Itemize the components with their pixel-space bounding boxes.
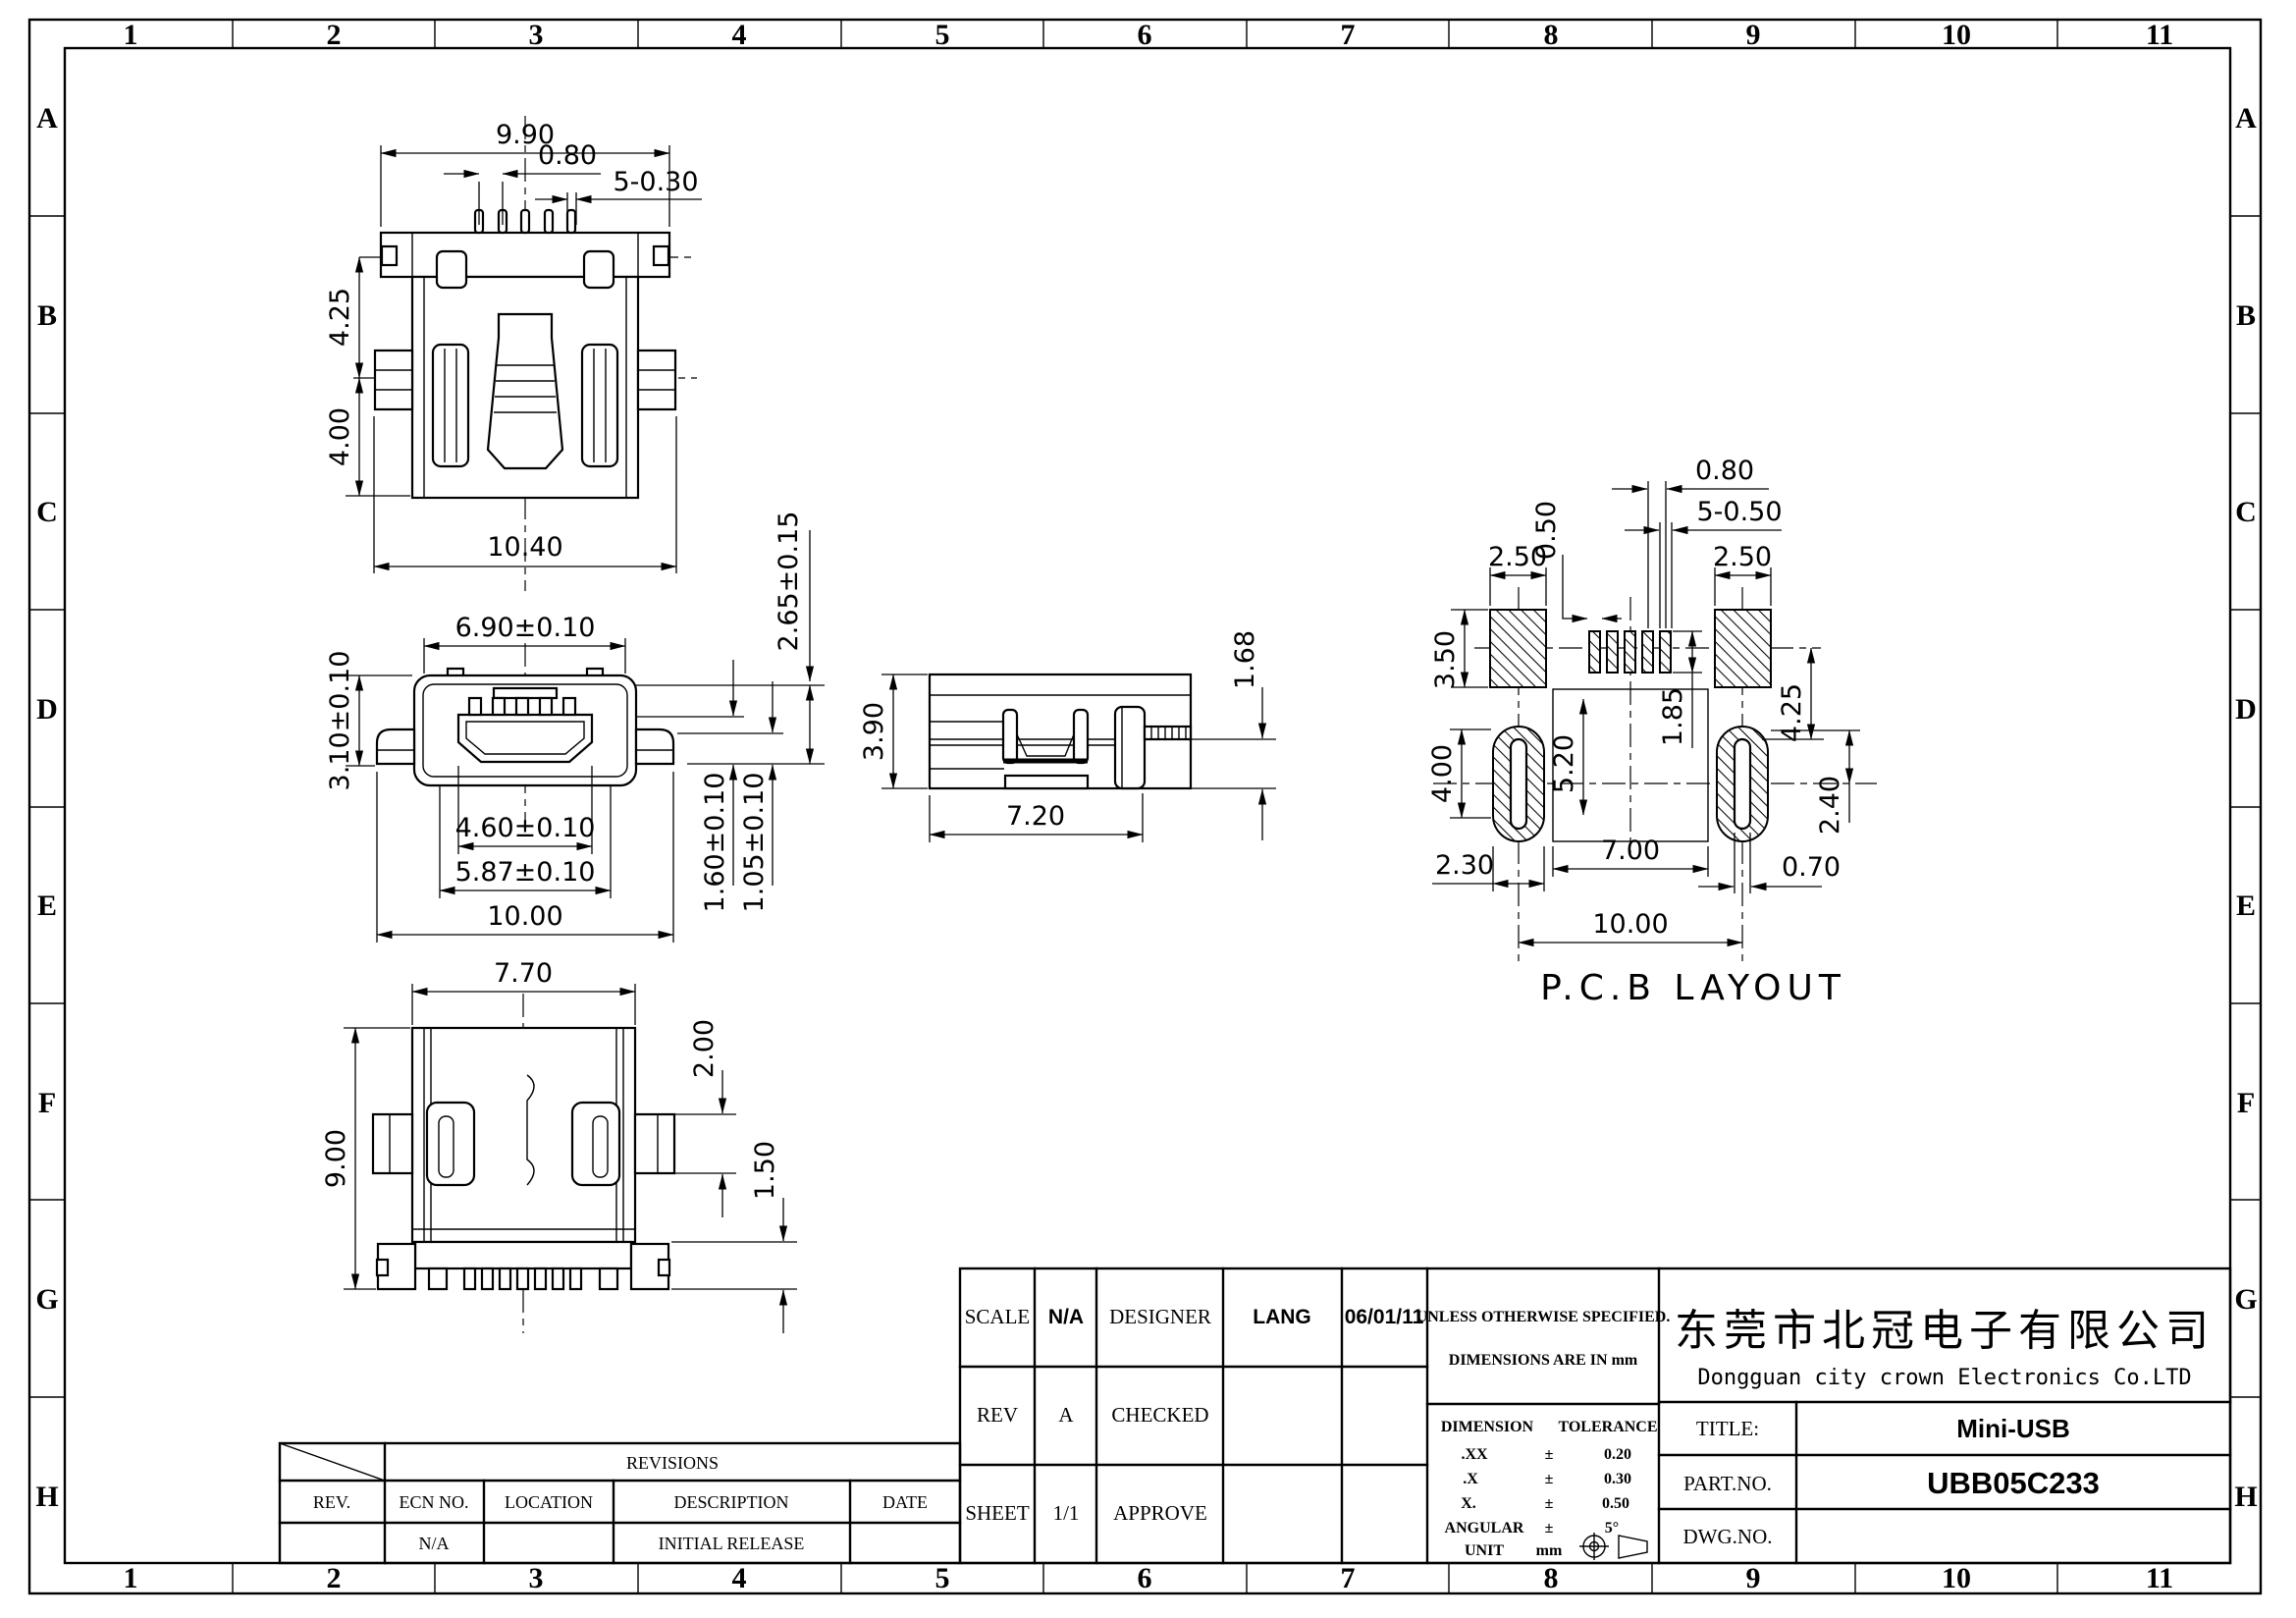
grid-col: 3 bbox=[529, 19, 544, 51]
grid-col: 8 bbox=[1544, 1562, 1559, 1594]
dim-rear-width-bottom: 10.40 bbox=[487, 532, 562, 563]
approve-label: APPROVE bbox=[1113, 1501, 1207, 1525]
part-no-value: UBB05C233 bbox=[1927, 1466, 2100, 1500]
grid-labels-bottom: 1234567891011 bbox=[124, 1562, 2174, 1594]
dim-pcb-body-len: 5.20 bbox=[1549, 734, 1579, 793]
revisions-header-location: LOCATION bbox=[505, 1492, 593, 1512]
grid-row: H bbox=[35, 1481, 58, 1513]
dim-top-tab: 2.00 bbox=[689, 1019, 720, 1078]
grid-col: 4 bbox=[732, 1562, 747, 1594]
grid-row: D bbox=[2235, 693, 2257, 726]
dim-front-height: 3.10±0.10 bbox=[325, 651, 355, 791]
dim-front-width-top: 6.90±0.10 bbox=[455, 613, 596, 643]
grid-row: F bbox=[2237, 1087, 2255, 1119]
title-value: Mini-USB bbox=[1956, 1414, 2070, 1443]
grid-row: G bbox=[2234, 1283, 2257, 1316]
revisions-header-date: DATE bbox=[882, 1492, 928, 1512]
drawing-sheet: 1234567891011 1234567891011 ABCDEFGH ABC… bbox=[0, 0, 2296, 1618]
revisions-header-description: DESCRIPTION bbox=[673, 1492, 788, 1512]
rev-label: REV bbox=[977, 1403, 1018, 1427]
rear-view: 9.90 0.80 5-0.30 4.25 4.00 10.40 bbox=[325, 116, 702, 591]
dim-rear-upper-height: 4.25 bbox=[325, 288, 355, 347]
grid-row: C bbox=[2235, 496, 2257, 528]
revisions-header-ecn: ECN NO. bbox=[400, 1492, 469, 1512]
dim-pcb-oval-width: 2.30 bbox=[1435, 850, 1494, 881]
grid-col: 9 bbox=[1746, 1562, 1761, 1594]
tolerance-header-tolerance: TOLERANCE bbox=[1558, 1419, 1657, 1435]
third-angle-projection-icon bbox=[1579, 1533, 1647, 1560]
dim-side-width: 7.20 bbox=[1006, 801, 1065, 832]
pcb-layout-view: 2.50 2.50 0.50 0.80 5-0.50 1.85 5.20 3.5… bbox=[1427, 456, 1877, 1008]
dim-front-height-r2: 1.60±0.10 bbox=[700, 773, 730, 913]
dim-top-height: 9.00 bbox=[321, 1129, 351, 1188]
grid-row: G bbox=[35, 1283, 58, 1316]
company-name-cn: 东莞市北冠电子有限公司 bbox=[1675, 1307, 2215, 1355]
grid-col: 6 bbox=[1138, 19, 1152, 51]
sheet-label: SHEET bbox=[965, 1501, 1030, 1525]
dim-front-inner-width: 4.60±0.10 bbox=[455, 813, 596, 843]
dwg-no-label: DWG.NO. bbox=[1683, 1525, 1773, 1548]
side-view: 3.90 7.20 1.68 bbox=[859, 630, 1276, 842]
revision-description-value: INITIAL RELEASE bbox=[659, 1534, 805, 1553]
grid-col: 10 bbox=[1942, 19, 1971, 51]
grid-col: 5 bbox=[935, 1562, 950, 1594]
grid-row: F bbox=[38, 1087, 56, 1119]
dim-pcb-pad-len: 3.50 bbox=[1430, 630, 1461, 689]
grid-col: 9 bbox=[1746, 19, 1761, 51]
date-value: 06/01/11 bbox=[1345, 1306, 1424, 1328]
grid-ticks bbox=[29, 20, 2261, 1593]
note-line1: UNLESS OTHERWISE SPECIFIED. bbox=[1416, 1309, 1671, 1325]
tol-row2-val: 0.30 bbox=[1604, 1471, 1631, 1487]
grid-row: B bbox=[37, 299, 57, 332]
dim-pcb-row-offset: 4.25 bbox=[1777, 683, 1807, 742]
title-label: TITLE: bbox=[1696, 1417, 1759, 1440]
grid-col: 8 bbox=[1544, 19, 1559, 51]
designer-value: LANG bbox=[1253, 1306, 1311, 1328]
dim-pcb-holes: 5-0.50 bbox=[1696, 497, 1782, 527]
grid-col: 7 bbox=[1341, 19, 1356, 51]
dim-pcb-pin-len: 1.85 bbox=[1658, 687, 1688, 746]
dim-side-height: 3.90 bbox=[859, 702, 889, 761]
title-block: SCALE N/A DESIGNER LANG 06/01/11 REV A C… bbox=[960, 1268, 2230, 1563]
unit-value: mm bbox=[1536, 1542, 1563, 1559]
grid-row: H bbox=[2234, 1481, 2257, 1513]
dim-top-foot: 1.50 bbox=[750, 1141, 780, 1200]
tol-row1-pm: ± bbox=[1545, 1446, 1554, 1463]
grid-col: 11 bbox=[2146, 19, 2173, 51]
dim-front-height-r1: 2.65±0.15 bbox=[774, 512, 804, 652]
top-view: 7.70 9.00 2.00 1.50 bbox=[321, 958, 797, 1333]
dim-pcb-inner-span: 7.00 bbox=[1601, 836, 1660, 866]
pcb-layout-caption: P.C.B LAYOUT bbox=[1540, 968, 1846, 1008]
grid-col: 3 bbox=[529, 1562, 544, 1594]
dim-side-pin-height: 1.68 bbox=[1230, 630, 1260, 689]
grid-row: B bbox=[2236, 299, 2256, 332]
dim-pcb-pitch: 0.80 bbox=[1695, 456, 1754, 486]
dim-top-width: 7.70 bbox=[494, 958, 553, 989]
grid-row: E bbox=[2236, 890, 2256, 922]
tol-row1-val: 0.20 bbox=[1604, 1446, 1631, 1463]
grid-col: 4 bbox=[732, 19, 747, 51]
revisions-table: REVISIONS REV. ECN NO. LOCATION DESCRIPT… bbox=[280, 1443, 960, 1563]
unit-label: UNIT bbox=[1465, 1542, 1504, 1559]
dim-front-height-r3: 1.05±0.10 bbox=[739, 773, 770, 913]
dim-front-total-width: 10.00 bbox=[487, 901, 562, 932]
dim-pcb-oval-offset: 2.40 bbox=[1815, 776, 1845, 835]
checked-label: CHECKED bbox=[1111, 1403, 1208, 1427]
tol-row3-pm: ± bbox=[1545, 1495, 1554, 1512]
grid-col: 2 bbox=[327, 1562, 342, 1594]
sheet-value: 1/1 bbox=[1053, 1501, 1080, 1525]
tol-row2-dim: .X bbox=[1463, 1471, 1478, 1487]
rev-value: A bbox=[1058, 1403, 1074, 1427]
scale-value: N/A bbox=[1048, 1306, 1084, 1328]
company-name-en: Dongguan city crown Electronics Co.LTD bbox=[1697, 1366, 2191, 1390]
tol-row4-val: 0.50 bbox=[1602, 1495, 1629, 1512]
front-view: 6.90±0.10 3.10±0.10 4.60±0.10 5.87±0.10 … bbox=[325, 512, 825, 943]
drawing-canvas: 1234567891011 1234567891011 ABCDEFGH ABC… bbox=[0, 0, 2296, 1618]
grid-col: 2 bbox=[327, 19, 342, 51]
grid-row: A bbox=[2235, 102, 2257, 135]
sheet-frame: 1234567891011 1234567891011 ABCDEFGH ABC… bbox=[29, 19, 2261, 1594]
tol-row4-pm: ± bbox=[1545, 1520, 1554, 1537]
revisions-header-rev: REV. bbox=[313, 1492, 350, 1512]
grid-col: 7 bbox=[1341, 1562, 1356, 1594]
scale-label: SCALE bbox=[965, 1305, 1031, 1328]
dim-pcb-pad-width: 0.50 bbox=[1531, 501, 1562, 560]
dim-pcb-span: 10.00 bbox=[1592, 909, 1668, 940]
grid-col: 5 bbox=[935, 19, 950, 51]
grid-col: 1 bbox=[124, 19, 138, 51]
grid-col: 1 bbox=[124, 1562, 138, 1594]
dim-rear-pin-count: 5-0.30 bbox=[613, 167, 698, 197]
dim-rear-pin-pitch: 0.80 bbox=[538, 140, 597, 171]
dim-pcb-pad-right: 2.50 bbox=[1713, 542, 1772, 572]
note-line2: DIMENSIONS ARE IN mm bbox=[1449, 1352, 1638, 1369]
dim-front-mid-width: 5.87±0.10 bbox=[455, 857, 596, 888]
dim-pcb-edge: 0.70 bbox=[1782, 852, 1841, 883]
revision-ecn-value: N/A bbox=[419, 1534, 450, 1553]
part-no-label: PART.NO. bbox=[1683, 1472, 1772, 1495]
grid-col: 11 bbox=[2146, 1562, 2173, 1594]
dim-rear-lower-height: 4.00 bbox=[325, 407, 355, 466]
tolerance-header-dimension: DIMENSION bbox=[1441, 1419, 1534, 1435]
grid-col: 6 bbox=[1138, 1562, 1152, 1594]
tol-row1-dim: .XX bbox=[1461, 1446, 1488, 1463]
grid-row: D bbox=[36, 693, 58, 726]
tol-row4-val: 5° bbox=[1605, 1520, 1619, 1537]
tol-row4-dim: ANGULAR bbox=[1445, 1520, 1524, 1537]
dim-pcb-oval-len: 4.00 bbox=[1427, 744, 1458, 803]
grid-labels-top: 1234567891011 bbox=[124, 19, 2174, 51]
grid-row: A bbox=[36, 102, 58, 135]
grid-row: C bbox=[36, 496, 58, 528]
tol-row2-pm: ± bbox=[1545, 1471, 1554, 1487]
grid-col: 10 bbox=[1942, 1562, 1971, 1594]
revisions-title: REVISIONS bbox=[626, 1453, 719, 1473]
designer-label: DESIGNER bbox=[1109, 1305, 1211, 1328]
grid-row: E bbox=[37, 890, 57, 922]
tol-row3-dim: X. bbox=[1461, 1495, 1476, 1512]
